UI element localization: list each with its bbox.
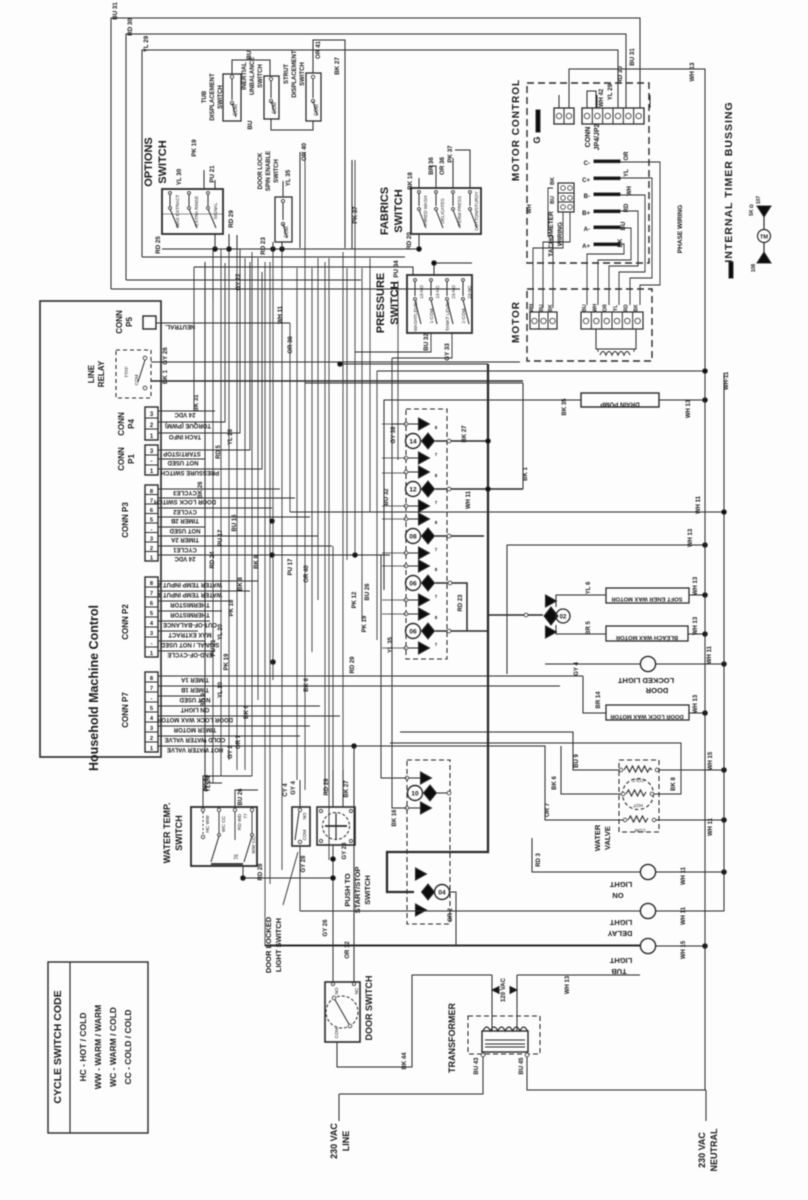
svg-text:8: 8 xyxy=(435,615,438,620)
svg-text:GY 26: GY 26 xyxy=(162,347,169,365)
svg-text:WH 11: WH 11 xyxy=(708,817,714,836)
svg-text:LIGHT: LIGHT xyxy=(609,956,632,965)
svg-text:OPTIONS: OPTIONS xyxy=(143,137,155,187)
svg-text:DISPLACEMENT: DISPLACEMENT xyxy=(210,73,216,121)
svg-text:SOFT ENER WAX MOTOR: SOFT ENER WAX MOTOR xyxy=(611,596,683,602)
svg-text:NEUTRAL.: NEUTRAL. xyxy=(165,323,196,329)
svg-text:OR 2: OR 2 xyxy=(448,907,454,922)
svg-text:WH: WH xyxy=(529,303,535,312)
svg-text:HOT: HOT xyxy=(633,803,643,808)
svg-text:TM: TM xyxy=(760,235,768,241)
svg-text:OR 7: OR 7 xyxy=(545,802,551,817)
svg-text:Household Machine Control: Household Machine Control xyxy=(87,605,101,771)
svg-text:WH 11: WH 11 xyxy=(681,866,687,885)
svg-text:RD 23: RD 23 xyxy=(458,594,464,612)
svg-text:BK 8: BK 8 xyxy=(238,577,244,591)
svg-text:YL 24: YL 24 xyxy=(206,775,212,792)
svg-text:1: 1 xyxy=(150,651,154,657)
svg-text:08: 08 xyxy=(409,534,417,541)
svg-text:1: 1 xyxy=(150,469,154,475)
svg-text:WH 15: WH 15 xyxy=(708,751,714,770)
svg-text:PHASE WIRING: PHASE WIRING xyxy=(677,205,684,253)
svg-text:BK 1: BK 1 xyxy=(523,467,529,481)
svg-text:02: 02 xyxy=(560,615,567,621)
svg-text:LOCKED LIGHT: LOCKED LIGHT xyxy=(617,676,674,685)
svg-text:PRESSURE: PRESSURE xyxy=(375,273,387,334)
svg-text:RELAY: RELAY xyxy=(97,360,106,387)
svg-text:NO: NO xyxy=(302,812,307,819)
svg-text:SPIN ENABLE: SPIN ENABLE xyxy=(266,151,272,191)
svg-text:WH 42: WH 42 xyxy=(599,88,605,107)
svg-text:NOT USED: NOT USED xyxy=(167,459,199,465)
svg-text:PU 21: PU 21 xyxy=(211,639,217,656)
svg-text:WASHTLEVEL: WASHTLEVEL xyxy=(413,300,418,331)
svg-text:YL: YL xyxy=(624,169,630,177)
svg-text:TACH INFO: TACH INFO xyxy=(169,433,202,439)
svg-text:TIMER 2B: TIMER 2B xyxy=(170,517,199,523)
svg-text:RD 25: RD 25 xyxy=(155,236,162,254)
svg-text:5: 5 xyxy=(150,706,154,712)
svg-text:7: 7 xyxy=(435,642,438,647)
svg-text:A+: A+ xyxy=(582,244,590,250)
svg-text:107: 107 xyxy=(756,196,762,205)
svg-text:OR: OR xyxy=(624,151,630,161)
svg-text:MOTOR CONTROL: MOTOR CONTROL xyxy=(511,79,522,181)
svg-text:LINE: LINE xyxy=(87,364,96,383)
svg-text:WATER: WATER xyxy=(593,824,602,851)
svg-text:GY 26: GY 26 xyxy=(323,919,329,937)
svg-text:OR 41: OR 41 xyxy=(315,41,322,59)
svg-text:230 VAC: 230 VAC xyxy=(329,1123,339,1159)
svg-text:YL 29: YL 29 xyxy=(607,83,614,100)
svg-text:WH 13: WH 13 xyxy=(693,694,699,713)
svg-text:3: 3 xyxy=(150,412,154,418)
svg-text:DISPLACEMENT: DISPLACEMENT xyxy=(292,50,298,98)
svg-text:LIGHT SWITCH: LIGHT SWITCH xyxy=(274,918,283,972)
svg-text:JP4/JP2: JP4/JP2 xyxy=(594,123,601,150)
svg-text:NO: NO xyxy=(334,987,339,994)
svg-text:MOTOR: MOTOR xyxy=(511,301,522,343)
svg-text:COM: COM xyxy=(314,104,320,116)
svg-text:CONN P7: CONN P7 xyxy=(121,692,130,728)
svg-text:TRANSFORMER: TRANSFORMER xyxy=(447,1003,457,1073)
svg-text:GY 33: GY 33 xyxy=(444,343,451,361)
svg-text:BU 45: BU 45 xyxy=(519,1057,525,1075)
svg-text:BK 44: BK 44 xyxy=(402,1052,408,1070)
svg-text:CYCLE2: CYCLE2 xyxy=(173,508,197,514)
svg-text:P1: P1 xyxy=(127,454,136,464)
svg-text:BK 8: BK 8 xyxy=(671,777,677,791)
svg-text:WATER TEMP.: WATER TEMP. xyxy=(162,803,172,864)
svg-text:8: 8 xyxy=(435,473,438,478)
svg-text:BK 27: BK 27 xyxy=(462,425,468,443)
svg-text:BK 16: BK 16 xyxy=(392,809,398,827)
svg-text:DOOR LOCK WAX MOTOR: DOOR LOCK WAX MOTOR xyxy=(156,716,233,722)
svg-text:EXTRA RINSE: EXTRA RINSE xyxy=(194,196,199,226)
svg-text:76: 76 xyxy=(234,854,240,860)
svg-text:14: 14 xyxy=(409,439,417,446)
svg-text:YL 35: YL 35 xyxy=(285,169,292,186)
svg-text:RD WD: RD WD xyxy=(237,813,243,830)
svg-text:PU 17: PU 17 xyxy=(288,558,294,575)
svg-text:GY 4: GY 4 xyxy=(574,662,580,676)
svg-text:DOOR LOCK SWITCH: DOOR LOCK SWITCH xyxy=(154,498,216,504)
svg-text:13-NC: 13-NC xyxy=(435,285,440,299)
svg-text:1-COM: 1-COM xyxy=(429,308,434,323)
svg-text:CONN: CONN xyxy=(115,310,124,334)
svg-text:BU: BU xyxy=(247,120,254,129)
svg-text:BK 8: BK 8 xyxy=(254,555,260,569)
svg-text:YL 30: YL 30 xyxy=(176,168,183,185)
svg-text:230 VAC: 230 VAC xyxy=(697,1132,707,1168)
svg-text:RD 28: RD 28 xyxy=(258,863,264,881)
svg-text:CONN P2: CONN P2 xyxy=(121,604,130,640)
svg-text:COM: COM xyxy=(272,102,278,114)
svg-text:BU 31: BU 31 xyxy=(112,2,119,20)
svg-text:PK 18: PK 18 xyxy=(229,599,235,616)
svg-text:BK 18: BK 18 xyxy=(407,172,414,190)
svg-text:BK 1: BK 1 xyxy=(162,369,169,384)
svg-text:BU 31: BU 31 xyxy=(629,48,636,66)
svg-text:2: 2 xyxy=(150,423,154,429)
svg-text:8: 8 xyxy=(150,676,154,682)
svg-text:6: 6 xyxy=(150,601,154,607)
svg-text:8: 8 xyxy=(435,567,438,572)
svg-text:BK 6: BK 6 xyxy=(304,678,310,692)
svg-text:WH 13: WH 13 xyxy=(689,62,696,81)
svg-text:HOT WATER VALVE: HOT WATER VALVE xyxy=(167,746,223,752)
svg-text:CYCLE1: CYCLE1 xyxy=(173,546,197,552)
svg-text:3: 3 xyxy=(150,449,154,455)
svg-text:CY 4: CY 4 xyxy=(283,783,289,797)
svg-text:WH-11: WH-11 xyxy=(724,371,730,390)
svg-text:8: 8 xyxy=(435,425,438,430)
svg-text:WW CC: WW CC xyxy=(251,836,257,854)
svg-text:WC - WARM / COLD: WC - WARM / COLD xyxy=(108,1007,118,1087)
svg-text:5: 5 xyxy=(150,611,154,617)
svg-text:THRED WASH: THRED WASH xyxy=(423,196,428,227)
svg-text:COM: COM xyxy=(334,1027,339,1038)
svg-text:RD 23: RD 23 xyxy=(260,237,267,255)
svg-text:SWITCH: SWITCH xyxy=(300,62,306,86)
svg-text:CONN P3: CONN P3 xyxy=(121,502,130,538)
svg-text:WH 15: WH 15 xyxy=(681,940,687,959)
svg-text:1: 1 xyxy=(150,434,154,440)
svg-text:DOOR SWITCH: DOOR SWITCH xyxy=(364,976,374,1041)
svg-text:BU 32: BU 32 xyxy=(384,488,390,506)
svg-text:WH 13: WH 13 xyxy=(565,975,571,994)
svg-text:WC CC: WC CC xyxy=(221,815,227,832)
svg-text:-: - xyxy=(151,641,153,647)
svg-text:SWITCH: SWITCH xyxy=(157,140,169,183)
svg-text:BK 27: BK 27 xyxy=(334,57,341,75)
svg-text:24 VDC: 24 VDC xyxy=(174,555,196,561)
svg-text:COM: COM xyxy=(302,829,307,840)
svg-text:BU: BU xyxy=(550,196,556,204)
svg-text:WH 11: WH 11 xyxy=(681,906,687,925)
svg-text:A-: A- xyxy=(584,227,590,233)
svg-text:06: 06 xyxy=(409,581,417,588)
svg-text:GY 22: GY 22 xyxy=(236,273,242,291)
svg-text:RD 30: RD 30 xyxy=(127,18,134,36)
svg-text:120 VAC: 120 VAC xyxy=(501,977,507,1002)
svg-text:TIMER MOTOR: TIMER MOTOR xyxy=(173,726,216,732)
svg-text:DELICATES: DELICATES xyxy=(440,198,445,223)
svg-text:OUT-OF-BALANCE: OUT-OF-BALANCE xyxy=(163,621,217,627)
svg-text:TUB: TUB xyxy=(202,90,208,103)
svg-text:BU 9: BU 9 xyxy=(574,754,580,768)
svg-text:PRESSURE SWITCH: PRESSURE SWITCH xyxy=(161,469,219,475)
svg-text:YL 6: YL 6 xyxy=(586,581,592,594)
svg-text:WH: WH xyxy=(592,303,598,312)
svg-text:SWITCH: SWITCH xyxy=(174,815,184,851)
svg-text:WH 13: WH 13 xyxy=(693,616,699,635)
svg-text:PU 34: PU 34 xyxy=(393,260,400,278)
svg-text:UNBALANCE: UNBALANCE xyxy=(250,57,256,95)
svg-text:23-NO: 23-NO xyxy=(451,285,456,299)
svg-text:GY 28: GY 28 xyxy=(301,855,307,873)
svg-text:BU 26: BU 26 xyxy=(238,788,244,806)
svg-text:PK 37: PK 37 xyxy=(447,145,454,163)
svg-text:YL 35: YL 35 xyxy=(388,636,394,653)
svg-text:RD 20: RD 20 xyxy=(406,232,413,250)
svg-text:COM: COM xyxy=(634,828,645,833)
svg-text:2: 2 xyxy=(150,736,153,742)
svg-text:CONN: CONN xyxy=(117,412,126,436)
svg-text:ON: ON xyxy=(612,891,623,900)
svg-text:LIGHT: LIGHT xyxy=(609,918,632,927)
svg-text:BR 36: BR 36 xyxy=(428,157,435,175)
svg-text:WH: WH xyxy=(627,186,633,196)
svg-text:7: 7 xyxy=(435,547,438,552)
svg-text:DRAIN PUMP: DRAIN PUMP xyxy=(600,401,639,408)
svg-text:TTFF: TTFF xyxy=(124,366,129,377)
svg-text:P4: P4 xyxy=(127,419,136,429)
svg-text:5K Ω: 5K Ω xyxy=(749,204,755,216)
svg-text:BU: BU xyxy=(582,304,588,312)
svg-text:TANKT LEVEL: TANKT LEVEL xyxy=(445,300,450,331)
svg-text:VALVE: VALVE xyxy=(603,826,612,850)
svg-text:BK 31: BK 31 xyxy=(194,394,200,412)
svg-text:SWITCH: SWITCH xyxy=(363,875,372,905)
svg-text:BK 6: BK 6 xyxy=(552,776,558,790)
svg-text:7: 7 xyxy=(150,686,153,692)
svg-text:B-: B- xyxy=(584,194,590,200)
svg-text:BLEACH WAX MOTOR: BLEACH WAX MOTOR xyxy=(615,634,678,640)
svg-text:FABRICS: FABRICS xyxy=(379,187,391,235)
svg-text:GY 28: GY 28 xyxy=(342,842,348,860)
svg-text:RD 29: RD 29 xyxy=(324,778,330,796)
svg-text:NOT USED: NOT USED xyxy=(169,527,201,533)
svg-text:SWITCH: SWITCH xyxy=(389,281,401,324)
svg-text:WW - WARM / WARM: WW - WARM / WARM xyxy=(93,1005,103,1090)
svg-text:MAX EXTRACT: MAX EXTRACT xyxy=(175,194,180,227)
svg-text:BK 35: BK 35 xyxy=(562,398,568,416)
svg-text:77: 77 xyxy=(243,813,249,819)
svg-text:P5: P5 xyxy=(125,317,134,327)
svg-text:RD: RD xyxy=(623,304,629,312)
svg-text:4: 4 xyxy=(150,716,154,722)
svg-text:LIGHT: LIGHT xyxy=(609,880,632,889)
svg-text:-: - xyxy=(151,459,153,465)
svg-text:STRUT: STRUT xyxy=(284,64,290,84)
svg-text:BK 26: BK 26 xyxy=(198,481,204,499)
svg-text:TIMER 2A: TIMER 2A xyxy=(170,536,199,542)
svg-text:PK 19: PK 19 xyxy=(362,615,368,632)
svg-text:BK: BK xyxy=(618,238,624,247)
svg-text:OR: OR xyxy=(603,304,609,312)
svg-text:1: 1 xyxy=(150,746,154,752)
svg-text:NC: NC xyxy=(354,987,359,994)
svg-text:04: 04 xyxy=(438,890,446,897)
svg-text:COM: COM xyxy=(134,374,139,385)
svg-text:RD 3: RD 3 xyxy=(536,853,542,867)
svg-text:BU: BU xyxy=(539,304,545,312)
svg-text:23-NC: 23-NC xyxy=(467,285,472,299)
svg-text:BR 5: BR 5 xyxy=(586,621,592,635)
svg-text:DELAY: DELAY xyxy=(608,929,633,938)
svg-text:RD 29: RD 29 xyxy=(228,210,235,228)
svg-text:4: 4 xyxy=(150,621,154,627)
svg-text:START/STOP: START/STOP xyxy=(163,450,200,456)
svg-text:TORQUE (PWM): TORQUE (PWM) xyxy=(165,422,211,428)
svg-text:8: 8 xyxy=(150,581,154,587)
svg-text:THERMISTOR: THERMISTOR xyxy=(170,611,210,617)
svg-text:THERMISTOR: THERMISTOR xyxy=(170,601,210,607)
svg-text:HC - HOT / COLD: HC - HOT / COLD xyxy=(78,1013,88,1082)
svg-text:10: 10 xyxy=(411,791,419,798)
svg-text:WH 13: WH 13 xyxy=(688,528,694,547)
svg-text:DOOR LOCK: DOOR LOCK xyxy=(258,152,264,189)
svg-text:COLD WATER VALVE: COLD WATER VALVE xyxy=(165,736,226,742)
svg-text:2-COM: 2-COM xyxy=(461,308,466,323)
svg-text:HC WW: HC WW xyxy=(205,815,211,833)
svg-text:WATER TEMP INPUT 2: WATER TEMP INPUT 2 xyxy=(157,581,222,587)
svg-text:RD 29: RD 29 xyxy=(350,656,356,674)
svg-text:OR 40: OR 40 xyxy=(304,565,310,583)
svg-text:CYCLE SWITCH CODE: CYCLE SWITCH CODE xyxy=(52,990,64,1103)
svg-text:BU 26: BU 26 xyxy=(365,583,371,601)
svg-text:BU 43: BU 43 xyxy=(474,1057,480,1075)
svg-text:BK: BK xyxy=(550,177,556,185)
svg-text:BU 32: BU 32 xyxy=(423,333,430,351)
svg-text:108: 108 xyxy=(751,264,757,273)
svg-text:WH 11: WH 11 xyxy=(696,495,702,514)
svg-text:C+: C+ xyxy=(582,178,590,184)
svg-text:BK: BK xyxy=(634,304,640,312)
svg-text:PUSH TO: PUSH TO xyxy=(343,873,352,906)
svg-text:NEUTRAL: NEUTRAL xyxy=(709,1128,719,1171)
svg-text:LINE: LINE xyxy=(341,1131,351,1152)
svg-text:PERM PRESS: PERM PRESS xyxy=(457,196,462,226)
svg-text:7: 7 xyxy=(150,591,153,597)
svg-text:7: 7 xyxy=(435,500,438,505)
svg-text:13-NO: 13-NO xyxy=(419,285,424,299)
svg-text:COM: COM xyxy=(284,226,290,238)
svg-text:7: 7 xyxy=(150,499,153,505)
svg-text:G: G xyxy=(532,136,542,143)
svg-text:YL 29: YL 29 xyxy=(143,35,150,52)
svg-text:PU 21: PU 21 xyxy=(209,165,216,183)
svg-text:OR 12: OR 12 xyxy=(345,941,351,959)
svg-text:DOOR: DOOR xyxy=(645,686,668,695)
svg-text:INERTIAL: INERTIAL xyxy=(242,62,248,90)
svg-text:DOOR LOCK WAX MOTOR: DOOR LOCK WAX MOTOR xyxy=(610,713,684,719)
svg-text:WATER TEMP INPUT 1: WATER TEMP INPUT 1 xyxy=(157,591,222,597)
svg-text:WH 11: WH 11 xyxy=(466,490,472,509)
svg-text:8: 8 xyxy=(435,520,438,525)
svg-text:24 VDC: 24 VDC xyxy=(174,411,196,417)
svg-text:DOOR LOCKED: DOOR LOCKED xyxy=(264,916,273,973)
svg-text:SWITCH: SWITCH xyxy=(258,64,264,88)
svg-text:WH 13: WH 13 xyxy=(686,399,692,418)
svg-text:WH 11: WH 11 xyxy=(707,645,713,664)
svg-text:2: 2 xyxy=(150,546,153,552)
svg-text:B+: B+ xyxy=(582,211,590,217)
svg-text:WH 11: WH 11 xyxy=(278,305,284,324)
svg-text:COM: COM xyxy=(233,104,239,116)
svg-text:7: 7 xyxy=(435,594,438,599)
svg-text:PK 12: PK 12 xyxy=(352,591,358,608)
svg-text:OR 40: OR 40 xyxy=(301,143,308,161)
svg-text:-: - xyxy=(151,527,153,533)
svg-text:TACHOMETER: TACHOMETER xyxy=(548,211,555,257)
svg-text:BR 14: BR 14 xyxy=(596,691,602,709)
svg-text:COTTON/STURDY: COTTON/STURDY xyxy=(474,191,479,230)
svg-text:OR 36: OR 36 xyxy=(439,157,446,175)
svg-text:SWITCH: SWITCH xyxy=(274,159,280,183)
svg-text:C-: C- xyxy=(584,161,590,167)
svg-text:INTERNAL TIMER BUSSING: INTERNAL TIMER BUSSING xyxy=(723,101,735,262)
svg-text:06: 06 xyxy=(409,629,417,636)
svg-text:GY 4: GY 4 xyxy=(291,781,297,795)
svg-text:RD 30: RD 30 xyxy=(617,66,624,84)
svg-text:BK 27: BK 27 xyxy=(344,780,350,798)
svg-text:12: 12 xyxy=(409,487,417,494)
svg-text:3: 3 xyxy=(150,726,154,732)
svg-text:CONN: CONN xyxy=(585,127,592,148)
svg-text:OR 38: OR 38 xyxy=(288,336,294,354)
svg-text:BK: BK xyxy=(548,304,554,312)
svg-text:PK 37: PK 37 xyxy=(352,206,359,224)
svg-text:-: - xyxy=(151,696,153,702)
svg-text:RD 9: RD 9 xyxy=(201,693,207,707)
svg-text:PK 19: PK 19 xyxy=(191,139,198,157)
svg-text:SIGNAL: SIGNAL xyxy=(213,202,218,219)
svg-text:7: 7 xyxy=(435,452,438,457)
svg-text:CC - COLD / COLD: CC - COLD / COLD xyxy=(123,1009,133,1084)
svg-text:WH: WH xyxy=(527,204,533,213)
svg-text:END-OF-CYCLE: END-OF-CYCLE xyxy=(167,651,212,657)
svg-text:SWITCH: SWITCH xyxy=(393,189,405,232)
svg-text:BU: BU xyxy=(621,222,627,231)
svg-text:CONN: CONN xyxy=(117,447,126,471)
svg-text:3: 3 xyxy=(150,631,154,637)
svg-text:WH 13: WH 13 xyxy=(693,576,699,595)
svg-text:CYCLE3: CYCLE3 xyxy=(173,489,197,495)
svg-text:YL: YL xyxy=(613,305,619,311)
